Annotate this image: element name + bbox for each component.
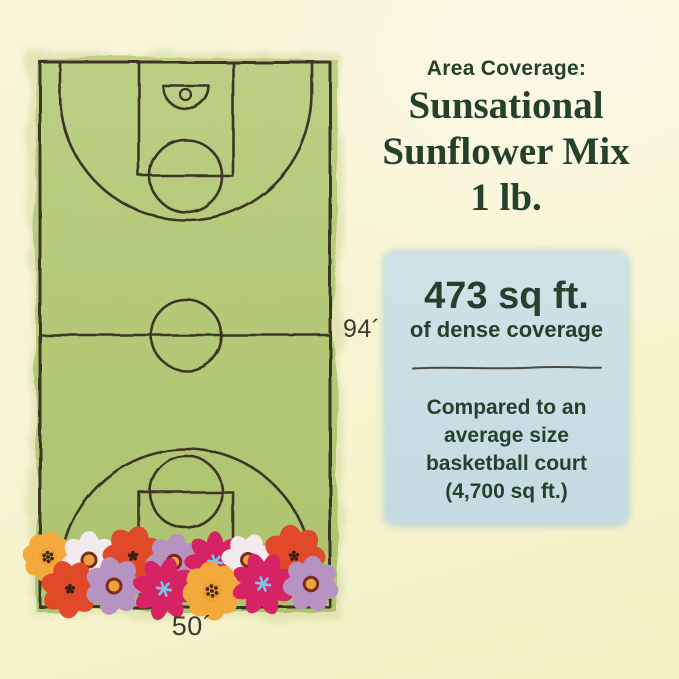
product-title: Sunsational Sunflower Mix 1 lb. xyxy=(356,83,656,221)
product-title-line-1: Sunsational xyxy=(356,83,656,129)
hand-drawn-divider-line xyxy=(409,364,605,372)
comparison-text: Compared to an average size basketball c… xyxy=(426,394,587,506)
coverage-caption: of dense coverage xyxy=(410,316,603,343)
court-width-label: 50´ xyxy=(161,611,223,642)
infographic: 94´ 50´ Area Coverage: Sunsational Sunfl… xyxy=(0,0,679,679)
product-title-line-2: Sunflower Mix xyxy=(356,129,656,175)
comparison-line-3: basketball court xyxy=(426,450,587,478)
comparison-line-4: (4,700 sq ft.) xyxy=(426,478,587,506)
product-title-line-3: 1 lb. xyxy=(356,175,656,221)
section-kicker: Area Coverage: xyxy=(386,57,627,81)
comparison-line-1: Compared to an xyxy=(426,394,587,422)
court-length-label: 94´ xyxy=(343,315,381,344)
coverage-value: 473 sq ft. xyxy=(424,276,589,316)
comparison-line-2: average size xyxy=(426,422,587,450)
coverage-card: 473 sq ft. of dense coverage Compared to… xyxy=(386,253,627,524)
